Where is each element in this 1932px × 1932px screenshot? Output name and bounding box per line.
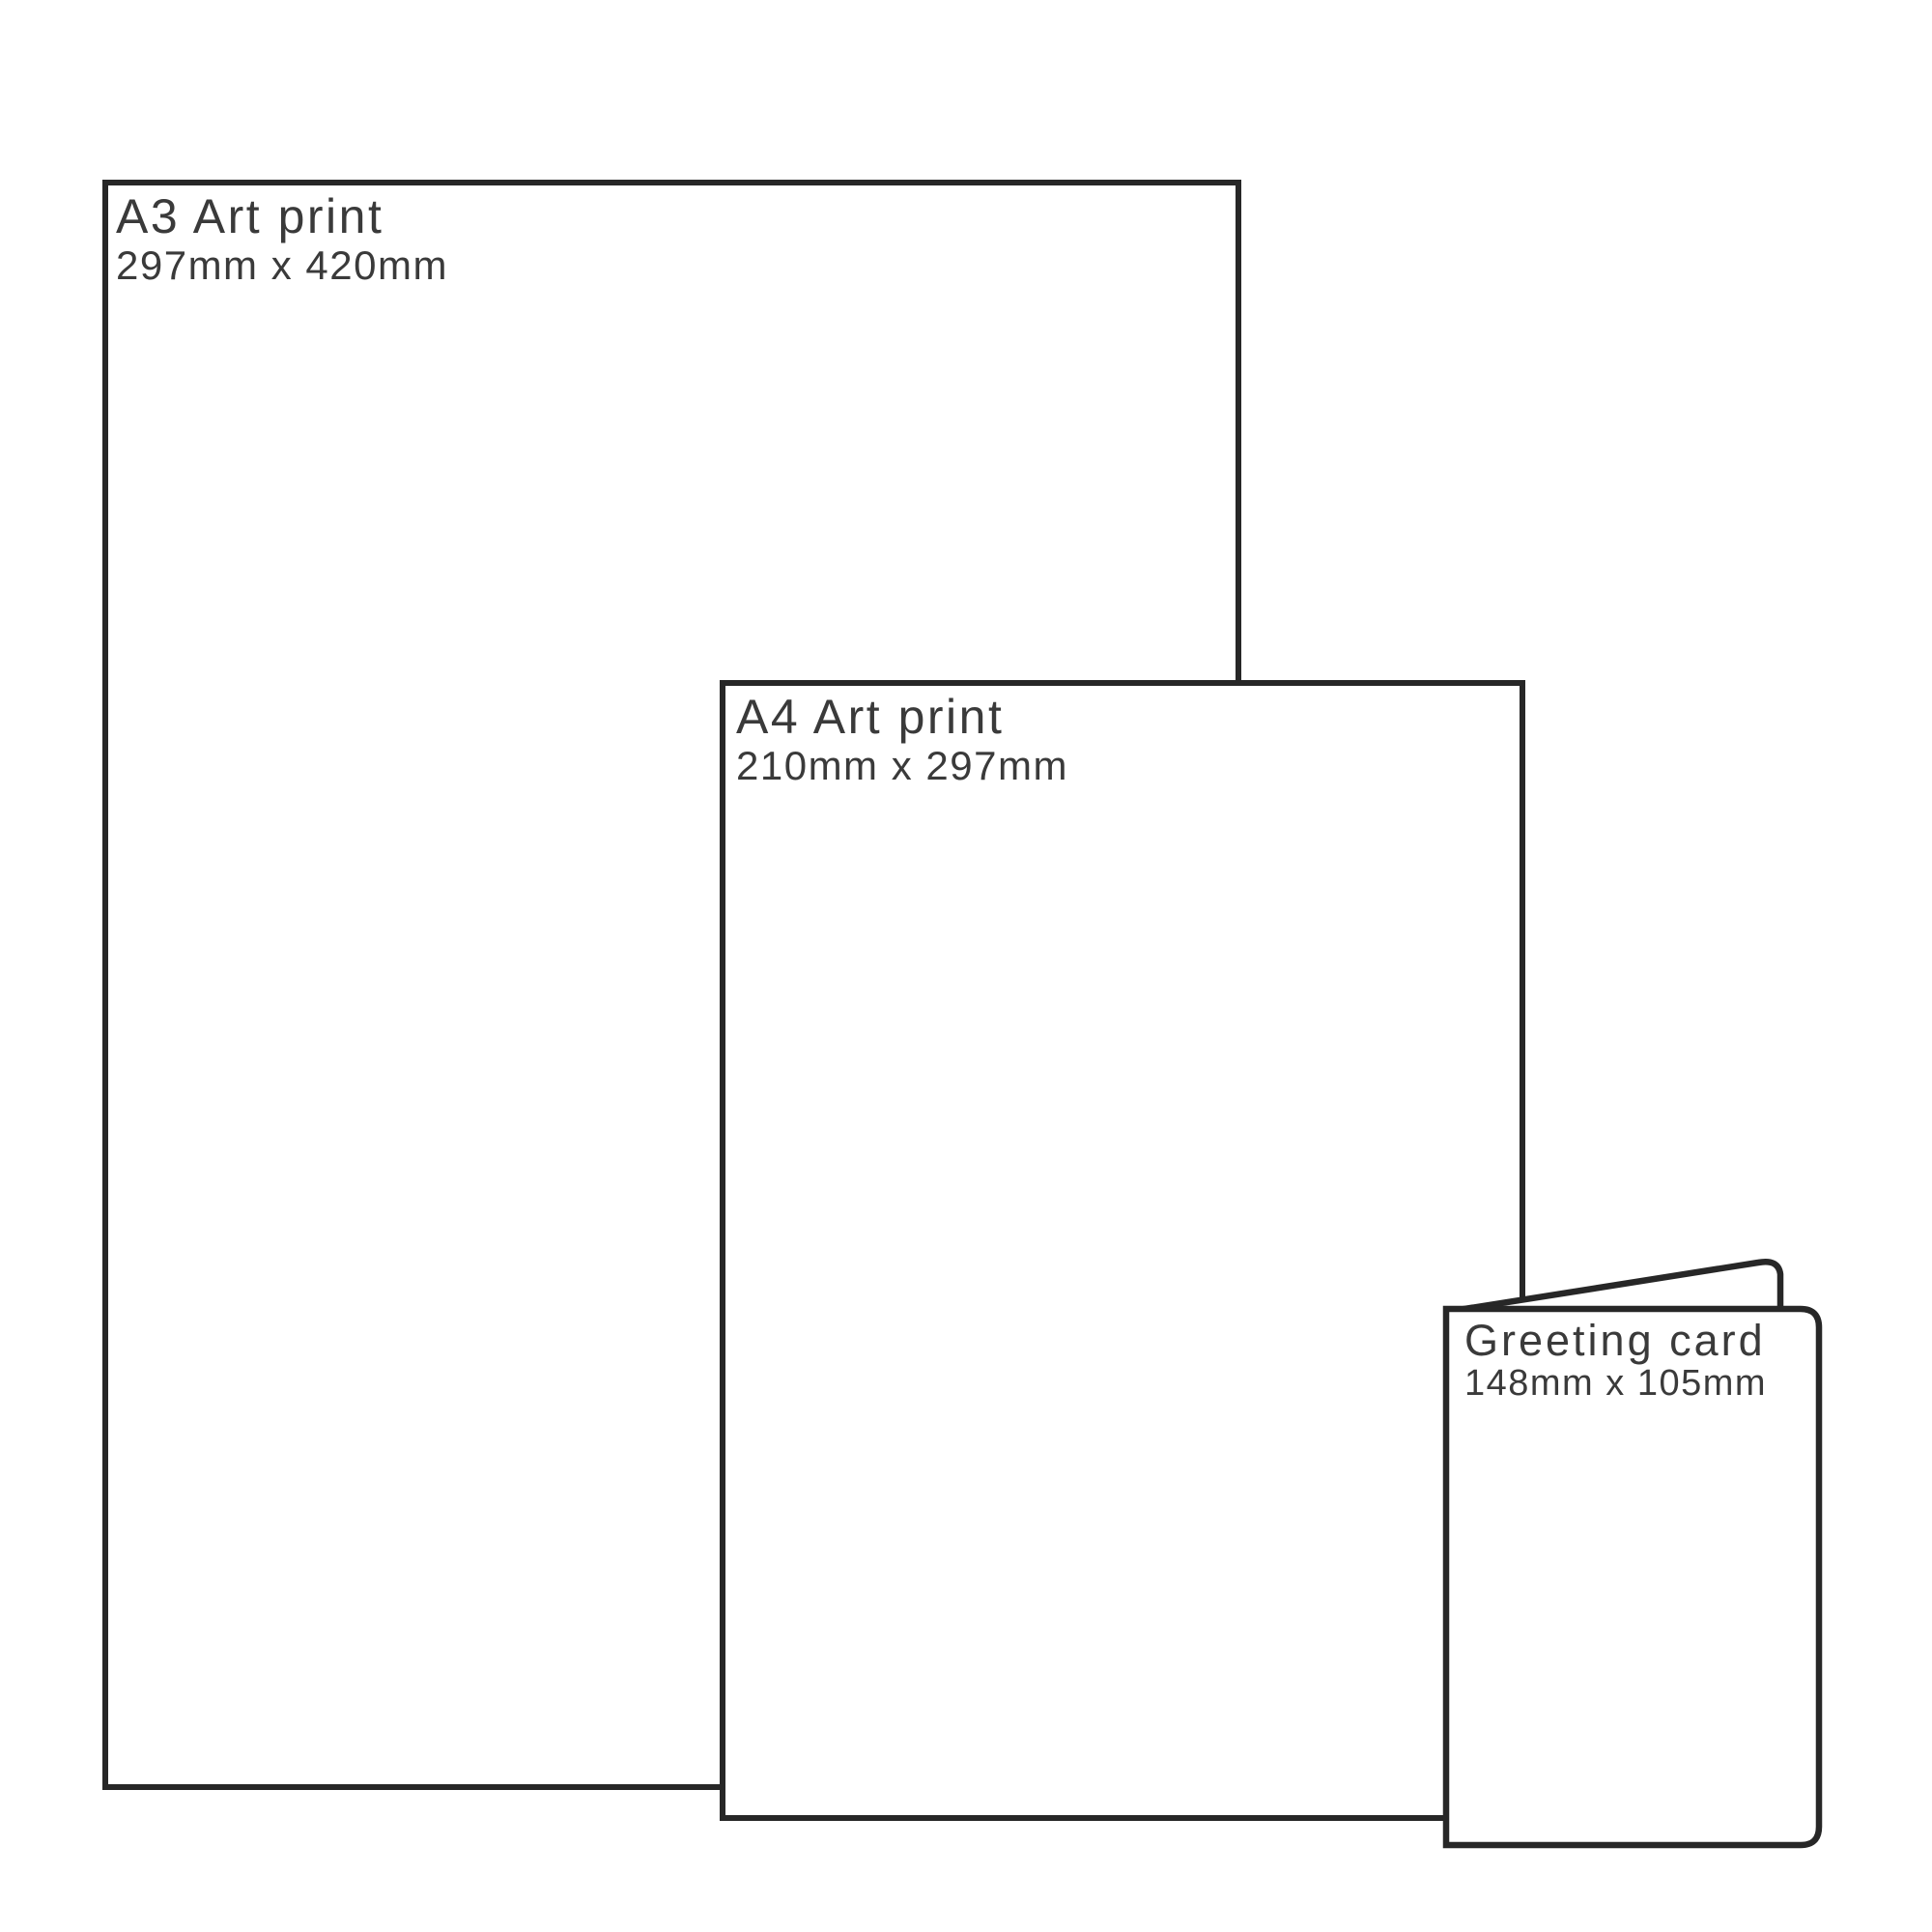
a3-print-title: A3 Art print <box>116 191 448 241</box>
greeting-card-back-panel <box>1446 1262 1780 1312</box>
greeting-card-label: Greeting card 148mm x 105mm <box>1464 1318 1767 1405</box>
a4-print-dimensions: 210mm x 297mm <box>736 742 1068 789</box>
a4-print-title: A4 Art print <box>736 692 1068 742</box>
print-size-comparison-diagram: A3 Art print 297mm x 420mm A4 Art print … <box>0 0 1932 1932</box>
a3-print-label: A3 Art print 297mm x 420mm <box>116 191 448 289</box>
a3-print-dimensions: 297mm x 420mm <box>116 241 448 289</box>
greeting-card-title: Greeting card <box>1464 1318 1767 1363</box>
a4-print-label: A4 Art print 210mm x 297mm <box>736 692 1068 789</box>
greeting-card-dimensions: 148mm x 105mm <box>1464 1363 1767 1405</box>
